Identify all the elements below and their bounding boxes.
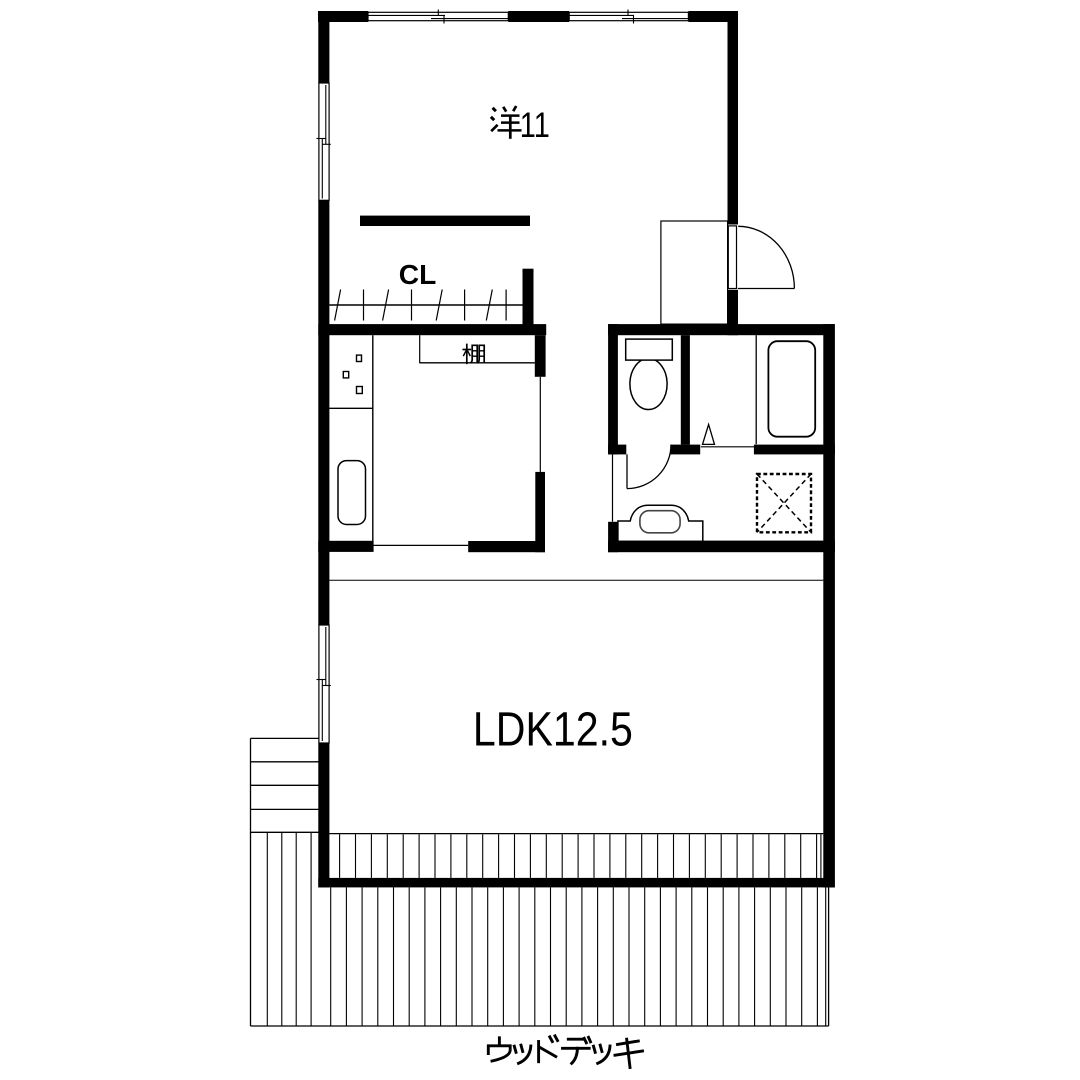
svg-text:11: 11 [520, 106, 550, 145]
svg-text:LDK12.5: LDK12.5 [473, 704, 633, 757]
svg-text:CL: CL [399, 259, 437, 290]
